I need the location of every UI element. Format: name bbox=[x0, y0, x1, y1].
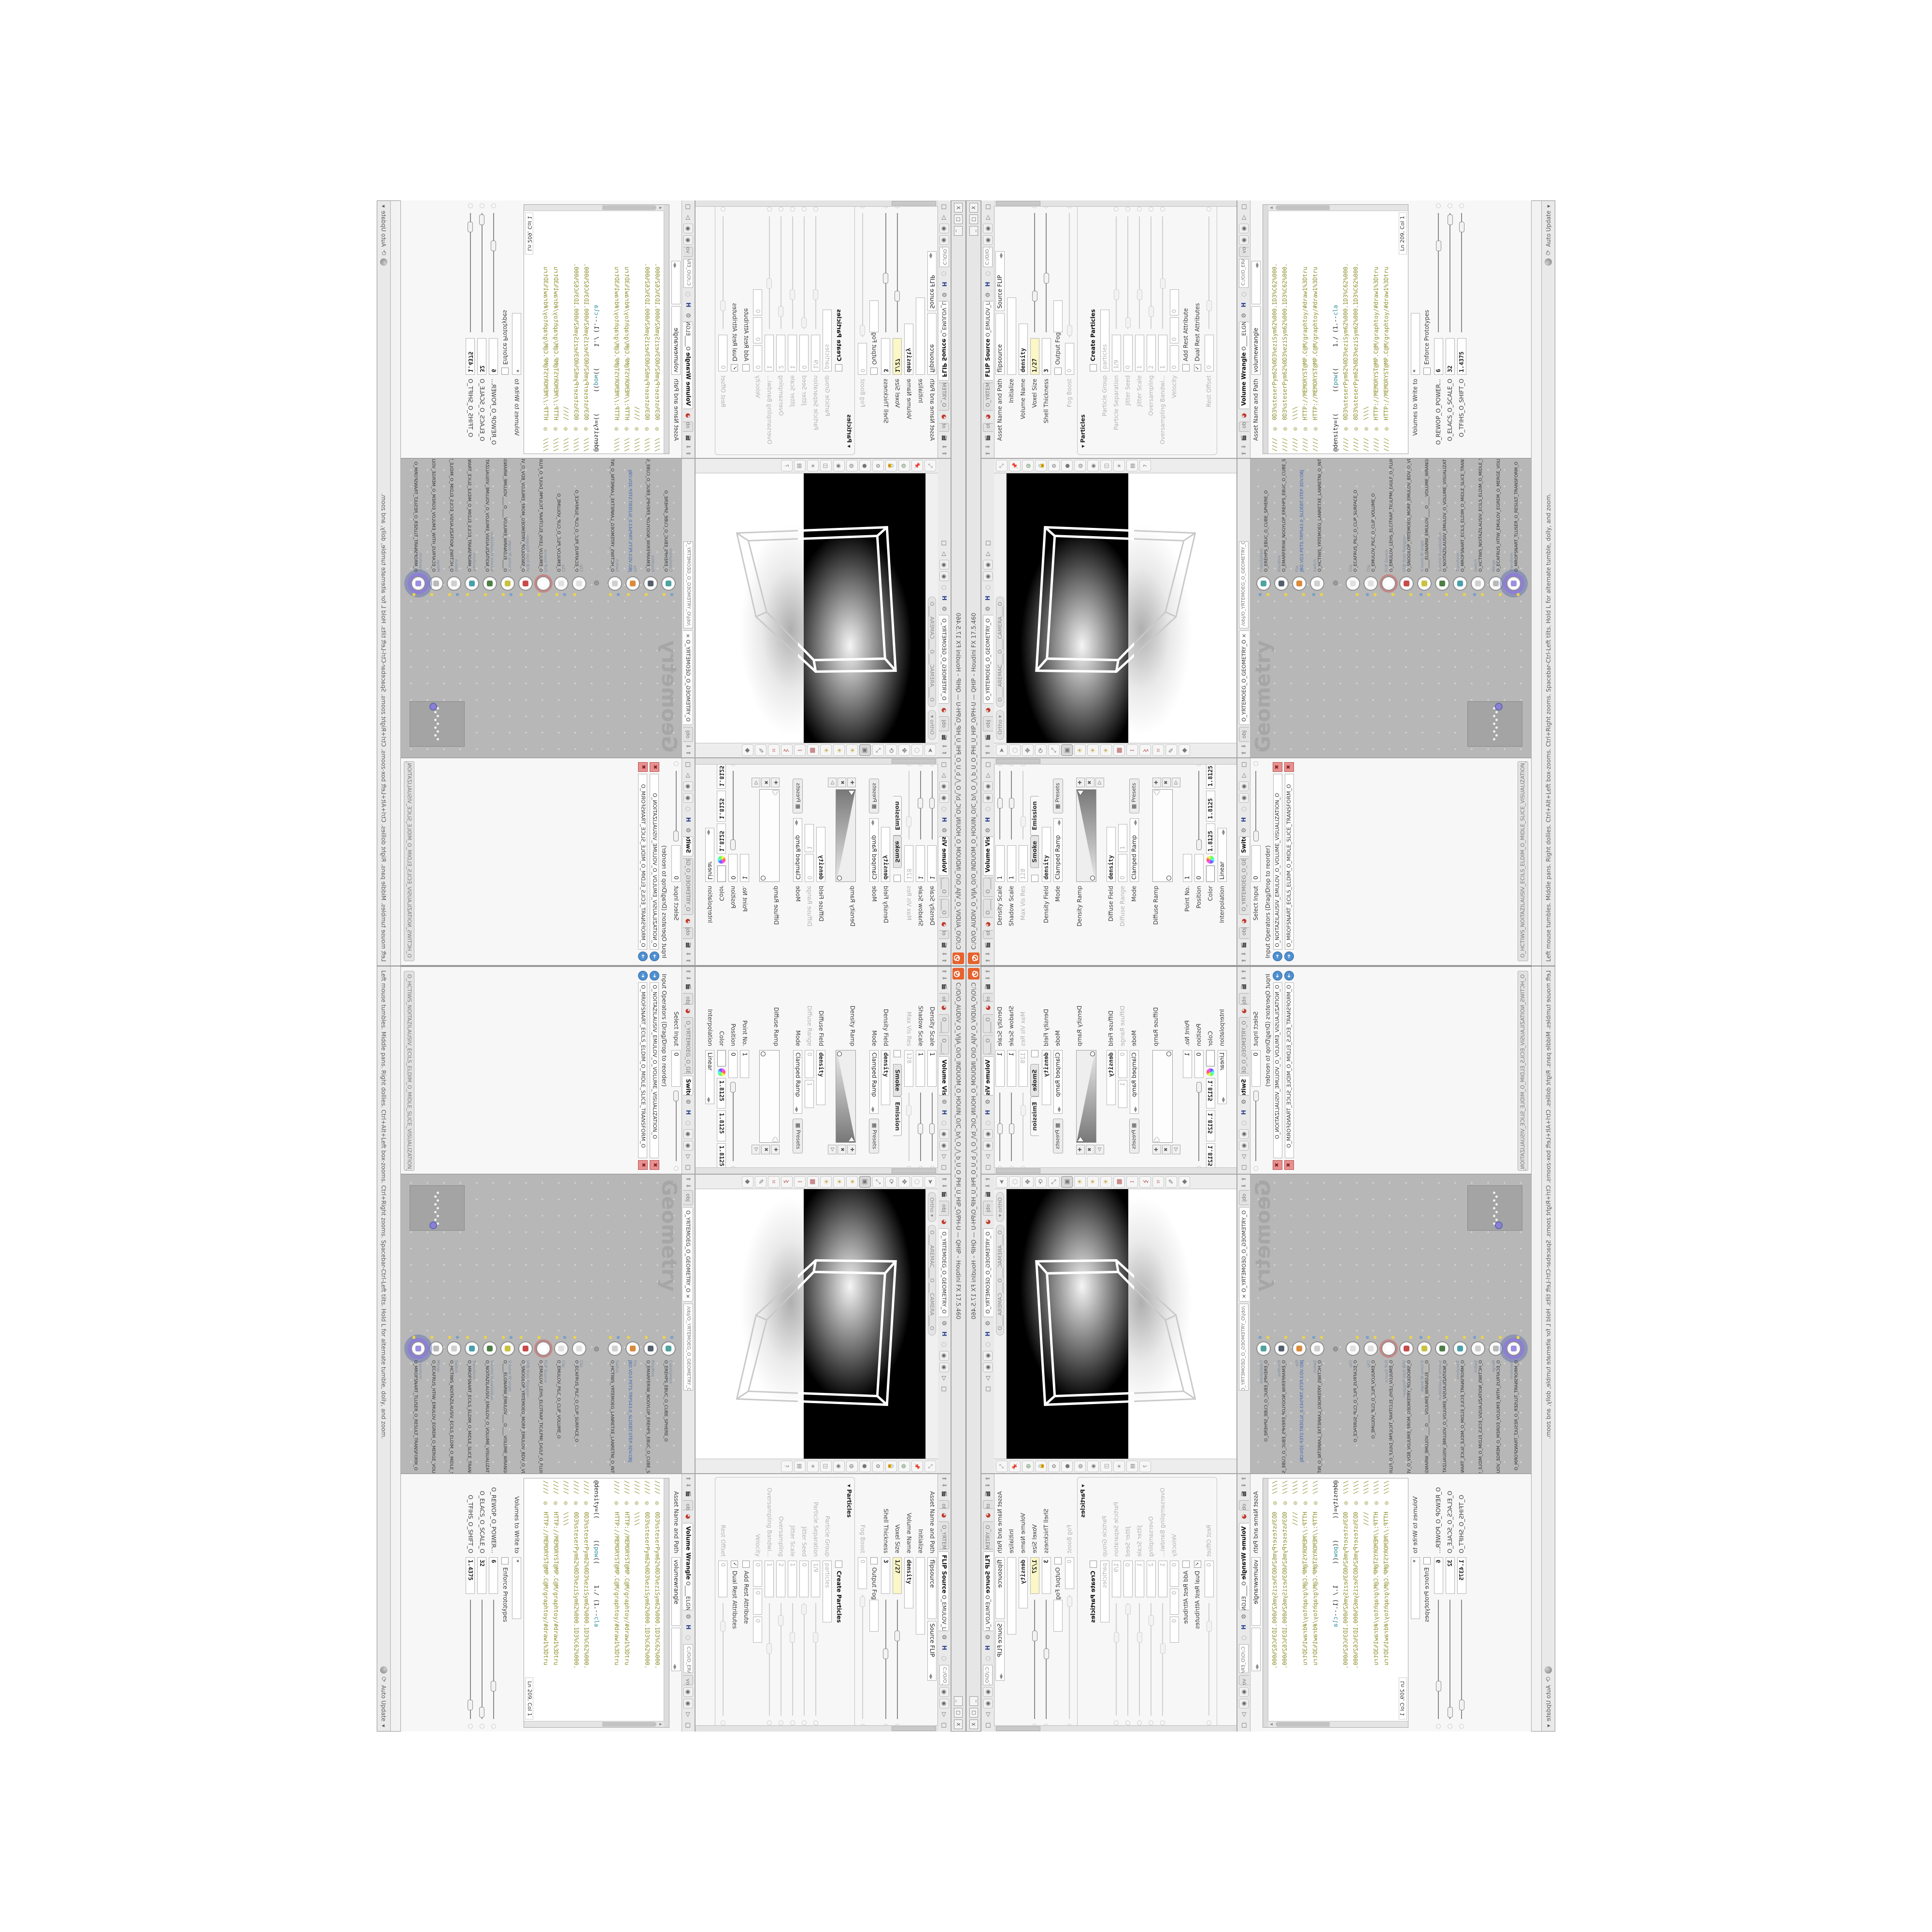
node-flag-blue[interactable] bbox=[1420, 1336, 1422, 1339]
gear-icon[interactable]: ⚙ bbox=[983, 826, 992, 835]
slider-handle[interactable] bbox=[767, 278, 772, 289]
network-node[interactable] bbox=[661, 576, 676, 591]
search-icon[interactable]: ◌ bbox=[983, 1119, 992, 1127]
sphere-wire-icon[interactable]: ◍ bbox=[846, 460, 858, 472]
network-node[interactable] bbox=[1256, 576, 1271, 591]
color-value-field[interactable]: 1.8125 bbox=[1206, 1078, 1215, 1108]
value-field[interactable]: 1 bbox=[1135, 335, 1144, 371]
radio-b-icon[interactable]: ◉ bbox=[983, 224, 993, 233]
snap-prim-icon[interactable]: ⌗ bbox=[768, 745, 780, 756]
scroll-down-icon[interactable]: ▼ bbox=[653, 205, 657, 210]
param-slider[interactable] bbox=[777, 216, 785, 329]
active-tab[interactable]: O_YRTEMOEG_O_GEOMETRY_O bbox=[983, 1228, 993, 1317]
ramp-widget[interactable] bbox=[759, 789, 780, 882]
stop-icon[interactable]: □ bbox=[940, 1721, 949, 1730]
value-field[interactable]: 0 bbox=[858, 343, 867, 375]
value-field[interactable]: volumewrangle bbox=[1251, 1557, 1261, 1626]
active-tab[interactable]: Volume Wrangle O____ELGNARW_EMULOV____O_… bbox=[683, 1523, 694, 1610]
slider-handle[interactable] bbox=[1207, 1621, 1212, 1632]
network-node[interactable] bbox=[1435, 576, 1449, 591]
checkbox[interactable] bbox=[894, 1050, 901, 1057]
cube-icon[interactable]: ◫ bbox=[1100, 1461, 1112, 1472]
slider-handle[interactable] bbox=[1196, 1082, 1202, 1093]
slider-handle[interactable] bbox=[1448, 1707, 1453, 1718]
ortho-pill[interactable]: Ortho ▾ bbox=[928, 1192, 936, 1222]
network-minimap[interactable] bbox=[1467, 1185, 1522, 1231]
search-icon[interactable]: ◌ bbox=[1239, 1634, 1248, 1642]
network-node[interactable] bbox=[1310, 576, 1324, 591]
param-slider[interactable] bbox=[719, 216, 727, 329]
ramp-add-button[interactable]: ✚ bbox=[1076, 778, 1085, 787]
node-flag-blue[interactable] bbox=[456, 593, 459, 596]
network-node[interactable] bbox=[1310, 1341, 1324, 1356]
slider-handle[interactable] bbox=[1137, 289, 1142, 300]
node-flag-yellow[interactable] bbox=[627, 593, 630, 596]
value-field[interactable]: density bbox=[1107, 1050, 1116, 1105]
gear-icon[interactable]: ⚙ bbox=[872, 1461, 884, 1472]
sphere-shade-icon[interactable]: ● bbox=[859, 1461, 871, 1472]
rotate-icon[interactable]: ⟳ bbox=[885, 745, 897, 756]
node-flag-yellow[interactable] bbox=[1481, 593, 1484, 596]
auto-update-control[interactable]: ⟳Auto Update▾ bbox=[1545, 1666, 1552, 1727]
lamp-a-icon[interactable]: ☀ bbox=[1074, 1176, 1086, 1188]
slider-handle[interactable] bbox=[918, 798, 923, 809]
active-tab[interactable]: O_YRTEMOEG_O_GEOMETRY_O bbox=[983, 615, 993, 704]
value-field[interactable]: Clamped Ramp◀▶ bbox=[794, 818, 803, 882]
active-tab[interactable]: FLIP Source O_EMULOV_LEHS_ELCITRAP_TICIL… bbox=[939, 301, 950, 381]
minimize-button[interactable]: _ bbox=[954, 1696, 963, 1706]
snap-point-icon[interactable]: ᎒ bbox=[1126, 1176, 1138, 1188]
value-field[interactable]: flipsource bbox=[995, 1557, 1005, 1619]
slider-handle[interactable] bbox=[767, 1643, 772, 1654]
value-field[interactable]: 0 bbox=[753, 345, 763, 371]
slider-handle[interactable] bbox=[1032, 291, 1037, 301]
lamp-b-icon[interactable]: ☀ bbox=[833, 1176, 845, 1188]
code-editor-scrollbar-top[interactable] bbox=[664, 1478, 669, 1727]
param-slider[interactable] bbox=[1008, 771, 1015, 839]
ramp-add-button[interactable]: ✚ bbox=[1152, 1145, 1161, 1154]
brush-icon[interactable]: ✎ bbox=[1165, 745, 1177, 756]
camera-frame-icon[interactable]: ▣ bbox=[859, 1176, 871, 1188]
snap-prim-icon[interactable]: ⌗ bbox=[1152, 1176, 1164, 1188]
slider-handle[interactable] bbox=[801, 1604, 807, 1615]
sphere-shade-icon[interactable]: ● bbox=[1061, 460, 1073, 472]
value-field[interactable]: 128 bbox=[1019, 1050, 1028, 1087]
value-field[interactable]: 0 bbox=[1170, 1617, 1179, 1643]
search-icon[interactable]: ◌ bbox=[940, 1340, 949, 1349]
ramp-expand-button[interactable]: ▷ bbox=[1172, 1145, 1180, 1154]
asset-path-box[interactable]: C:/O/O_ERAWTFOS_O/O... bbox=[683, 259, 693, 288]
radio-a-icon[interactable]: ◉ bbox=[983, 1351, 993, 1361]
node-flag-blue[interactable] bbox=[1366, 1336, 1369, 1339]
value-field[interactable]: 3 bbox=[881, 1557, 891, 1594]
value-field[interactable]: 0 bbox=[1170, 317, 1179, 343]
value-field[interactable]: 0 bbox=[1251, 1050, 1261, 1087]
node-flag-yellow[interactable] bbox=[1284, 593, 1287, 596]
value-field[interactable]: * bbox=[1411, 1557, 1420, 1619]
value-field[interactable]: particles bbox=[1100, 310, 1109, 371]
search-icon[interactable]: ◌ bbox=[940, 1654, 949, 1663]
play-icon[interactable]: ▷ bbox=[983, 771, 992, 780]
network-canvas[interactable]: GeometryCubeSphereO_EREHPS_EBUC_O_CUBE_S… bbox=[1250, 1175, 1531, 1473]
breadcrumb[interactable]: obj bbox=[939, 423, 950, 432]
search-icon[interactable]: ◌ bbox=[940, 805, 949, 813]
color-swatch[interactable] bbox=[717, 1050, 726, 1066]
radio-a-icon[interactable]: ◉ bbox=[939, 235, 949, 245]
play-icon[interactable]: ▷ bbox=[983, 213, 992, 222]
lamp-c-icon[interactable]: ☀ bbox=[820, 1176, 832, 1188]
node-flag-yellow[interactable] bbox=[1517, 1336, 1520, 1339]
active-tab[interactable]: Switch bbox=[1239, 837, 1249, 856]
node-flag-yellow[interactable] bbox=[573, 1336, 576, 1339]
node-flag-yellow[interactable] bbox=[1302, 593, 1305, 596]
slider-handle[interactable] bbox=[1149, 306, 1154, 317]
value-field[interactable]: 1.4375 bbox=[1457, 1557, 1466, 1594]
network-node[interactable] bbox=[1435, 1341, 1449, 1356]
network-node[interactable] bbox=[1399, 576, 1414, 591]
operator-row[interactable]: ➜O_MROFSNART_ECILS_ELDIM_O_MIDLE_SLICE_T… bbox=[1284, 762, 1294, 961]
operator-delete-button[interactable]: ✖ bbox=[638, 762, 648, 772]
operator-move-icon[interactable]: ➜ bbox=[1284, 971, 1294, 980]
operator-name-field[interactable]: O_NOITAZILAUSIV_EMULOV_O_VOLUME_VISUALIZ… bbox=[650, 982, 659, 1158]
slider-handle[interactable] bbox=[491, 1681, 496, 1691]
value-field[interactable]: 0 bbox=[753, 1617, 763, 1643]
slider-handle[interactable] bbox=[1137, 1632, 1142, 1643]
param-slider[interactable] bbox=[996, 771, 1004, 839]
play-icon[interactable]: ▷ bbox=[684, 771, 693, 780]
value-field[interactable] bbox=[916, 1557, 925, 1634]
gear-icon[interactable]: ⚙ bbox=[1048, 1461, 1060, 1472]
search-icon[interactable]: ◌ bbox=[684, 1119, 693, 1127]
mode-tab-emission[interactable]: Emission bbox=[1030, 1096, 1039, 1136]
camera-pill[interactable]: O____AREMAC____O____CAMERA____O bbox=[996, 597, 1004, 707]
ramp-del-button[interactable]: ✖ bbox=[1162, 1145, 1171, 1154]
gear-icon[interactable]: ⚙ bbox=[983, 291, 992, 299]
network-node[interactable] bbox=[500, 1341, 515, 1356]
radio-a-icon[interactable]: ◉ bbox=[1239, 235, 1249, 245]
sphere-shade-icon[interactable]: ● bbox=[859, 460, 871, 472]
value-field[interactable]: ◀▶ bbox=[1251, 1628, 1261, 1671]
play-icon[interactable]: ▷ bbox=[684, 1710, 693, 1719]
param-slider[interactable] bbox=[1159, 1603, 1166, 1716]
value-field[interactable]: 128 bbox=[905, 1050, 914, 1087]
ramp-point-end[interactable] bbox=[849, 791, 854, 795]
node-flag-yellow[interactable] bbox=[1499, 593, 1502, 596]
ramp-point-end[interactable] bbox=[1154, 791, 1160, 795]
pane-tab[interactable]: O_HCTIWS_NOITAZILAUSIV_ECILS_ELDIM_O_MID… bbox=[404, 971, 414, 1171]
breadcrumb[interactable]: obj bbox=[983, 930, 993, 938]
operator-name-field[interactable]: O_NOITAZILAUSIV_EMULOV_O_VOLUME_VISUALIZ… bbox=[1273, 982, 1282, 1158]
node-flag-yellow[interactable] bbox=[538, 593, 540, 596]
camera-frame-icon[interactable]: ▣ bbox=[1061, 1176, 1073, 1188]
value-field[interactable]: 2 bbox=[1147, 335, 1156, 371]
value-field[interactable]: density bbox=[1042, 827, 1051, 882]
value-field[interactable]: 1/9 bbox=[811, 335, 821, 371]
param-slider[interactable] bbox=[917, 1093, 924, 1161]
lamp-a-icon[interactable]: ☀ bbox=[846, 1176, 858, 1188]
ramp-point-end[interactable] bbox=[1078, 1137, 1083, 1141]
snap-grid-icon[interactable]: ▦ bbox=[1113, 1176, 1125, 1188]
code-scrollbar-thumb[interactable] bbox=[1277, 1722, 1330, 1727]
value-field[interactable]: 1 bbox=[1158, 1561, 1167, 1597]
ramp-add-button[interactable]: ✚ bbox=[1152, 778, 1161, 787]
code-editor-scrollbar-right[interactable] bbox=[1268, 205, 1408, 211]
value-field[interactable]: 1 bbox=[1183, 854, 1192, 882]
value-field[interactable]: 2 bbox=[777, 335, 786, 371]
node-flag-yellow[interactable] bbox=[645, 1336, 648, 1339]
color-value-field[interactable]: 1.8125 bbox=[1206, 1110, 1215, 1141]
network-node[interactable] bbox=[625, 576, 640, 591]
node-flag-yellow[interactable] bbox=[1445, 593, 1448, 596]
param-slider[interactable] bbox=[917, 771, 924, 839]
lamp-b-icon[interactable]: ☀ bbox=[1087, 745, 1099, 756]
network-path[interactable]: /obj/O_YRTEMOEG_O_GEOMETRY_O bbox=[1239, 1304, 1249, 1391]
nav-forward-icon[interactable]: ⬇ bbox=[685, 1183, 692, 1188]
close-button[interactable]: X bbox=[969, 1719, 978, 1729]
color-wheel-icon[interactable] bbox=[718, 856, 725, 863]
operator-row[interactable]: ➜O_NOITAZILAUSIV_EMULOV_O_VOLUME_VISUALI… bbox=[649, 762, 660, 961]
value-field[interactable]: 0 bbox=[729, 1050, 738, 1078]
close-button[interactable]: X bbox=[954, 203, 963, 213]
operator-row[interactable]: ➜O_NOITAZILAUSIV_EMULOV_O_VOLUME_VISUALI… bbox=[1272, 971, 1283, 1170]
value-field[interactable]: ◀▶ bbox=[672, 1628, 681, 1671]
ramp-widget[interactable] bbox=[836, 1050, 856, 1143]
nav-back-icon[interactable]: ⬆ bbox=[984, 751, 991, 755]
value-field[interactable]: 0 bbox=[672, 1050, 681, 1087]
slider-handle[interactable] bbox=[720, 1621, 725, 1632]
lasso-icon[interactable]: ◌ bbox=[1009, 1176, 1021, 1188]
play-icon[interactable]: ▷ bbox=[940, 1374, 949, 1383]
code-editor-scrollbar-right[interactable] bbox=[524, 1721, 664, 1727]
value-field[interactable]: 0 bbox=[1170, 1589, 1179, 1615]
context-tab[interactable]: O_YRTEMOEG_O_GEOMETRY_O bbox=[1239, 858, 1249, 914]
param-slider[interactable] bbox=[789, 1603, 796, 1716]
minimize-button[interactable]: _ bbox=[969, 1696, 978, 1706]
scrollbar-thumb[interactable] bbox=[996, 1168, 1040, 1173]
snap-edge-icon[interactable]: 〻 bbox=[781, 745, 793, 756]
checkbox[interactable] bbox=[1054, 368, 1062, 375]
ramp-del-button[interactable]: ✖ bbox=[1086, 778, 1094, 787]
nav-back-icon[interactable]: ⬆ bbox=[984, 969, 991, 974]
value-field[interactable]: 0 bbox=[1065, 343, 1074, 375]
value-field[interactable]: 1.4375 bbox=[1457, 338, 1466, 375]
slider-handle[interactable] bbox=[468, 1700, 473, 1710]
slider-handle[interactable] bbox=[997, 798, 1003, 809]
scrollbar-thumb[interactable] bbox=[892, 1726, 936, 1731]
value-field[interactable]: density bbox=[905, 1557, 914, 1608]
value-field[interactable]: * bbox=[1411, 313, 1420, 375]
network-node[interactable] bbox=[1417, 1341, 1432, 1356]
color-wheel-icon[interactable] bbox=[718, 1068, 725, 1076]
cube-icon[interactable]: ◫ bbox=[820, 1461, 832, 1472]
scroll-up-icon[interactable]: ▲ bbox=[1269, 1722, 1274, 1727]
value-field[interactable]: 0 bbox=[753, 1589, 763, 1615]
breadcrumb[interactable]: obj bbox=[683, 993, 694, 1005]
breadcrumb[interactable]: obj bbox=[983, 423, 993, 432]
play-icon[interactable]: ▷ bbox=[684, 1152, 693, 1161]
value-field[interactable]: Clamped Ramp◀▶ bbox=[870, 818, 879, 882]
value-field[interactable]: 1/9 bbox=[811, 1561, 821, 1597]
lock-icon[interactable]: 🔒 bbox=[1035, 1461, 1047, 1472]
value-field[interactable]: Clamped Ramp◀▶ bbox=[1053, 818, 1063, 882]
snap-prim-icon[interactable]: ⌗ bbox=[1152, 745, 1164, 756]
node-flag-yellow[interactable] bbox=[502, 593, 505, 596]
asset-path-box[interactable]: C:/O/O_ERAWTFOS_O/O... bbox=[683, 1644, 693, 1674]
active-tab[interactable]: Volume Wrangle O____ELGNARW_EMULOV____O_… bbox=[1239, 322, 1249, 409]
network-node[interactable] bbox=[643, 1341, 658, 1356]
context-tab[interactable]: O_YRTEMOEG_O_GEOMETRY_O bbox=[939, 383, 950, 411]
value-field[interactable]: 1/27 bbox=[1030, 338, 1039, 375]
gear-icon[interactable]: ⚙ bbox=[983, 1319, 992, 1328]
slider-handle[interactable] bbox=[1459, 1700, 1464, 1710]
scroll-down-icon[interactable]: ▼ bbox=[653, 1722, 657, 1727]
network-context-tab[interactable]: O_YRTEMOEG_O_GEOMETRY_O × bbox=[1239, 1207, 1249, 1302]
network-node[interactable] bbox=[1346, 576, 1360, 591]
param-slider[interactable] bbox=[800, 1603, 808, 1716]
mode-tab-emission[interactable]: Emission bbox=[893, 1096, 902, 1136]
slider-handle[interactable] bbox=[1436, 241, 1441, 251]
code-scrollbar-thumb[interactable] bbox=[602, 1722, 655, 1727]
close-button[interactable]: X bbox=[969, 203, 978, 213]
gear-icon[interactable]: ⚙ bbox=[940, 1633, 949, 1642]
maximize-button[interactable]: □ bbox=[969, 1708, 978, 1718]
vol-tab[interactable]: vol bbox=[1239, 1675, 1249, 1685]
value-field[interactable]: * bbox=[512, 313, 522, 375]
ramp-widget[interactable] bbox=[836, 789, 856, 882]
search-icon[interactable]: ◌ bbox=[940, 583, 949, 592]
value-field[interactable]: Linear◀▶ bbox=[1218, 828, 1227, 882]
node-flag-yellow[interactable] bbox=[1409, 593, 1412, 596]
breadcrumb[interactable]: obj bbox=[983, 1201, 993, 1216]
ramp-point-end[interactable] bbox=[772, 1137, 778, 1141]
snap-grid-icon[interactable]: ▦ bbox=[1113, 745, 1125, 756]
ramp-del-button[interactable]: ✖ bbox=[838, 778, 846, 787]
slider-handle[interactable] bbox=[883, 273, 888, 284]
network-canvas[interactable]: GeometryCubeSphereO_EREHPS_EBUC_O_CUBE_S… bbox=[1250, 459, 1531, 757]
scrollbar[interactable] bbox=[696, 200, 938, 207]
node-flag-blue[interactable] bbox=[1259, 593, 1262, 596]
gear-icon[interactable]: ⚙ bbox=[940, 1097, 949, 1106]
ramp-add-button[interactable]: ✚ bbox=[847, 1145, 856, 1154]
slider-handle[interactable] bbox=[895, 1631, 900, 1641]
nav-back-icon[interactable]: ⬆ bbox=[685, 451, 692, 456]
checkbox[interactable] bbox=[1054, 1557, 1062, 1564]
presets-button[interactable]: ▦ Presets bbox=[1053, 1119, 1063, 1153]
minimize-button[interactable]: _ bbox=[954, 226, 963, 236]
pane-tab[interactable]: O_HCTIWS_NOITAZILAUSIV_ECILS_ELDIM_O_MID… bbox=[1518, 971, 1528, 1171]
value-field[interactable]: 1 bbox=[805, 1080, 814, 1108]
network-node[interactable] bbox=[554, 1341, 568, 1356]
play-icon[interactable]: ▷ bbox=[1239, 1152, 1248, 1161]
gear-icon[interactable]: ⚙ bbox=[684, 826, 693, 835]
nav-forward-icon[interactable]: ⬇ bbox=[1240, 1483, 1247, 1488]
network-node[interactable] bbox=[429, 1341, 443, 1356]
param-slider[interactable] bbox=[1147, 1603, 1155, 1716]
slider-handle[interactable] bbox=[813, 289, 818, 300]
network-context-tab[interactable]: O_YRTEMOEG_O_GEOMETRY_O × bbox=[683, 1207, 694, 1302]
asset-path-box[interactable]: C:/O/O_ERAWTFOS_O/O... bbox=[1239, 1644, 1249, 1674]
lamp-b-icon[interactable]: ☀ bbox=[833, 745, 845, 756]
nav-forward-icon[interactable]: ⬇ bbox=[685, 1483, 692, 1488]
checkbox[interactable]: ✓ bbox=[1194, 1561, 1201, 1568]
brush-icon[interactable]: ✎ bbox=[755, 1176, 767, 1188]
cube-icon[interactable]: ◫ bbox=[820, 460, 832, 472]
asset-path-box[interactable]: C:/O/O_ERAWTFOS_O/O... bbox=[939, 247, 949, 267]
play-icon[interactable]: ▷ bbox=[940, 1710, 949, 1719]
active-tab[interactable]: FLIP Source O_EMULOV_LEHS_ELCITRAP_TICIL… bbox=[983, 1551, 993, 1631]
slider-handle[interactable] bbox=[1160, 278, 1165, 289]
radio-b-icon[interactable]: ◉ bbox=[983, 1699, 993, 1708]
value-field[interactable]: density bbox=[1019, 1557, 1028, 1608]
param-slider[interactable] bbox=[1435, 1600, 1442, 1719]
network-node[interactable] bbox=[483, 1341, 497, 1356]
node-flag-yellow[interactable] bbox=[663, 593, 666, 596]
value-field[interactable]: 1.4375 bbox=[466, 1557, 475, 1594]
move-icon[interactable]: ✥ bbox=[898, 745, 910, 756]
operator-delete-button[interactable]: ✖ bbox=[638, 1160, 648, 1170]
param-slider[interactable] bbox=[882, 213, 890, 332]
network-context-tab[interactable]: O_YRTEMOEG_O_GEOMETRY_O × bbox=[683, 630, 694, 725]
network-path[interactable]: /obj/O_YRTEMOEG_O_GEOMETRY_O bbox=[683, 1304, 693, 1391]
camera2-icon[interactable]: ▤ bbox=[794, 460, 806, 472]
value-field[interactable]: 32 bbox=[478, 1557, 487, 1594]
nav-back-icon[interactable]: ⬆ bbox=[1240, 1177, 1247, 1181]
eraser-icon[interactable]: ◆ bbox=[1179, 1176, 1190, 1188]
value-field[interactable]: 1 bbox=[1007, 845, 1016, 882]
node-flag-yellow[interactable] bbox=[538, 1336, 540, 1339]
pane-tab[interactable]: O____ARTNAM___O... × bbox=[939, 899, 950, 918]
value-field[interactable]: 0 bbox=[1170, 345, 1179, 371]
breadcrumb[interactable]: obj bbox=[939, 1500, 950, 1509]
node-flag-yellow[interactable] bbox=[1409, 1336, 1412, 1339]
node-flag-blue[interactable] bbox=[1259, 1336, 1262, 1339]
active-tab[interactable]: Switch bbox=[683, 1076, 694, 1095]
operator-name-field[interactable]: O_NOITAZILAUSIV_EMULOV_O_VOLUME_VISUALIZ… bbox=[1273, 774, 1282, 950]
operator-move-icon[interactable]: ➜ bbox=[638, 952, 648, 961]
color-value-field[interactable]: 1.8125 bbox=[717, 824, 726, 854]
vol-tab[interactable]: vol bbox=[683, 247, 694, 257]
ramp-expand-button[interactable]: ▷ bbox=[828, 1145, 837, 1154]
play-icon[interactable]: ▷ bbox=[983, 549, 992, 558]
value-field[interactable]: 0 bbox=[805, 1050, 814, 1078]
value-field[interactable]: 0 bbox=[1170, 289, 1179, 315]
value-field[interactable]: 0 bbox=[753, 289, 763, 315]
ramp-point-end[interactable] bbox=[1078, 791, 1083, 795]
nav-back-icon[interactable]: ⬆ bbox=[984, 1177, 991, 1181]
network-node[interactable] bbox=[500, 576, 515, 591]
close-button[interactable]: X bbox=[954, 1719, 963, 1729]
value-field[interactable]: 6 bbox=[1434, 1557, 1443, 1594]
active-tab[interactable]: FLIP Source O_EMULOV_LEHS_ELCITRAP_TICIL… bbox=[939, 1551, 950, 1631]
nav-back-icon[interactable]: ⬆ bbox=[1240, 969, 1247, 974]
color-value-field[interactable]: 1.8125 bbox=[1206, 791, 1215, 821]
param-slider[interactable] bbox=[905, 1093, 913, 1161]
play-icon[interactable]: ▷ bbox=[940, 1152, 949, 1161]
node-flag-blue[interactable] bbox=[1473, 1336, 1476, 1339]
value-field[interactable]: Source FLIP◀▶ bbox=[928, 1621, 937, 1681]
value-field[interactable]: 3 bbox=[881, 338, 891, 375]
ramp-widget[interactable] bbox=[759, 1050, 780, 1143]
operator-name-field[interactable]: O_MROFSNART_ECILS_ELDIM_O_MIDLE_SLICE_TR… bbox=[1285, 774, 1294, 950]
breadcrumb[interactable]: obj bbox=[683, 927, 694, 939]
slider-handle[interactable] bbox=[1253, 831, 1259, 841]
pin-icon[interactable]: 📌 bbox=[911, 1461, 923, 1472]
ramp-add-button[interactable]: ✚ bbox=[771, 778, 780, 787]
value-field[interactable]: 1 bbox=[916, 1050, 925, 1087]
nav-back-icon[interactable]: ⬆ bbox=[1240, 451, 1247, 456]
light-icon[interactable]: ☀ bbox=[1113, 1461, 1125, 1472]
gear-icon[interactable]: ⚙ bbox=[983, 604, 992, 613]
